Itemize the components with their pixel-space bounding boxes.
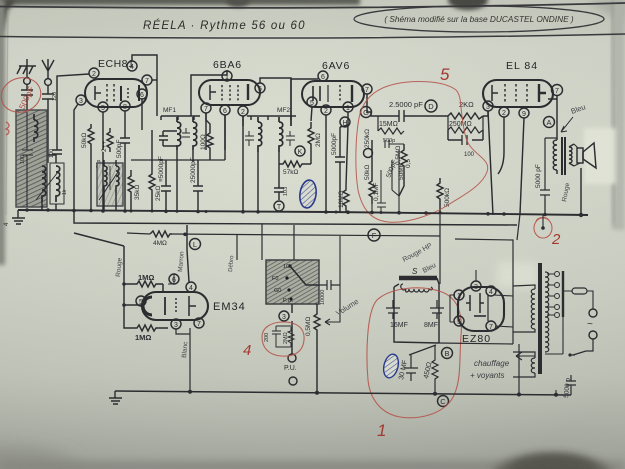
svg-text:H: H — [342, 120, 347, 127]
svg-text:Blanc: Blanc — [181, 341, 189, 359]
svg-text:5: 5 — [440, 65, 450, 84]
svg-text:P.U.: P.U. — [284, 365, 297, 372]
svg-text:K: K — [298, 149, 303, 156]
svg-text:A: A — [546, 118, 551, 127]
svg-text:500pF: 500pF — [116, 140, 123, 158]
svg-text:6: 6 — [223, 108, 227, 115]
svg-text:250kΩ: 250kΩ — [364, 129, 371, 148]
svg-text:MF2: MF2 — [277, 107, 290, 114]
svg-text:15MΩ: 15MΩ — [379, 121, 398, 128]
svg-text:57kΩ: 57kΩ — [283, 169, 298, 176]
svg-text:2: 2 — [92, 71, 96, 78]
svg-text:G0: G0 — [274, 288, 281, 294]
svg-text:10000: 10000 — [320, 290, 326, 305]
svg-text:16MF: 16MF — [390, 322, 408, 329]
svg-text:chauffage: chauffage — [474, 359, 510, 368]
svg-text:6: 6 — [321, 74, 325, 81]
svg-text:3: 3 — [174, 322, 178, 329]
svg-text:7: 7 — [555, 88, 559, 95]
svg-text:EZ80: EZ80 — [462, 333, 491, 345]
svg-text:RÉELA · Rythme 56 ou 60: RÉELA · Rythme 56 ou 60 — [143, 19, 306, 32]
svg-text:200: 200 — [264, 333, 270, 342]
svg-text:0,1MF: 0,1MF — [373, 183, 380, 201]
svg-text:2: 2 — [324, 108, 328, 115]
svg-text:D: D — [428, 102, 434, 111]
svg-text:B: B — [444, 349, 449, 358]
svg-text:2.5000 pF: 2.5000 pF — [389, 100, 423, 109]
svg-text:2MΩ: 2MΩ — [315, 133, 322, 147]
svg-text:T: T — [277, 204, 282, 211]
svg-text:9: 9 — [522, 111, 526, 118]
svg-text:S: S — [412, 267, 418, 276]
svg-text:500p: 500p — [383, 138, 395, 144]
svg-text:1: 1 — [377, 421, 386, 440]
svg-text:C: C — [440, 397, 446, 406]
svg-text:4: 4 — [130, 64, 134, 71]
svg-text:1k: 1k — [62, 189, 68, 195]
svg-text:F: F — [372, 231, 377, 240]
svg-text:50kΩ: 50kΩ — [364, 165, 371, 180]
svg-text:5000 pF: 5000 pF — [535, 164, 542, 188]
svg-text:6BA6: 6BA6 — [213, 59, 242, 71]
svg-text:3: 3 — [486, 104, 490, 111]
svg-text:1: 1 — [346, 105, 350, 112]
svg-text:7: 7 — [365, 87, 369, 94]
svg-text:F0: F0 — [272, 276, 278, 282]
svg-text:4: 4 — [189, 285, 193, 292]
svg-text:1MΩ: 1MΩ — [135, 333, 151, 342]
svg-text:6: 6 — [140, 92, 144, 99]
svg-text:35kΩ: 35kΩ — [134, 185, 141, 200]
svg-text:MF1: MF1 — [163, 107, 176, 114]
svg-text:6AV6: 6AV6 — [322, 60, 350, 72]
svg-text:1: 1 — [457, 293, 461, 300]
svg-text:5: 5 — [457, 319, 461, 326]
svg-text:3: 3 — [474, 284, 478, 291]
svg-text:250MΩ: 250MΩ — [449, 121, 472, 128]
svg-text:3: 3 — [282, 314, 286, 321]
svg-text:0,5MΩ: 0,5MΩ — [305, 317, 312, 336]
svg-text:100: 100 — [464, 152, 475, 158]
svg-text:2: 2 — [241, 109, 245, 116]
svg-text:7: 7 — [204, 106, 208, 113]
svg-text:EM34: EM34 — [213, 301, 246, 313]
svg-text:2: 2 — [502, 110, 506, 117]
svg-text:5: 5 — [101, 105, 105, 112]
svg-text:8MF: 8MF — [424, 322, 438, 329]
svg-text:5: 5 — [258, 86, 262, 93]
svg-text:25kΩ: 25kΩ — [155, 186, 162, 201]
svg-text:100Ω: 100Ω — [200, 134, 207, 150]
svg-text:EL 84: EL 84 — [506, 60, 538, 72]
svg-text:4: 4 — [489, 289, 493, 296]
svg-text:~: ~ — [587, 319, 593, 330]
svg-text:7: 7 — [489, 324, 493, 331]
svg-text:5: 5 — [310, 100, 314, 107]
svg-text:10MΩ: 10MΩ — [338, 190, 345, 208]
svg-text:50kΩ: 50kΩ — [81, 133, 88, 148]
svg-text:1MΩ: 1MΩ — [138, 273, 154, 282]
svg-text:103: 103 — [283, 187, 289, 196]
svg-text:2MΩ: 2MΩ — [283, 332, 289, 344]
svg-text:2++: 2++ — [101, 141, 108, 152]
svg-text:+ voyants: + voyants — [470, 371, 504, 380]
svg-text:2: 2 — [551, 231, 561, 248]
svg-text:3: 3 — [79, 98, 83, 105]
svg-text:ECH81: ECH81 — [98, 58, 134, 70]
svg-text:5000pF: 5000pF — [331, 133, 338, 155]
svg-text:100: 100 — [20, 155, 26, 164]
svg-text:4: 4 — [243, 342, 251, 359]
svg-text:0,5MΩ: 0,5MΩ — [395, 146, 402, 165]
svg-text:8: 8 — [123, 104, 127, 111]
svg-text:7: 7 — [197, 321, 201, 328]
svg-text:7: 7 — [145, 78, 149, 85]
svg-text:L: L — [193, 240, 197, 249]
svg-text:( Shéma modifié sur la base: ( Shéma modifié sur la base DUCASTEL OND… — [384, 14, 574, 24]
svg-text:4MΩ: 4MΩ — [153, 240, 167, 247]
